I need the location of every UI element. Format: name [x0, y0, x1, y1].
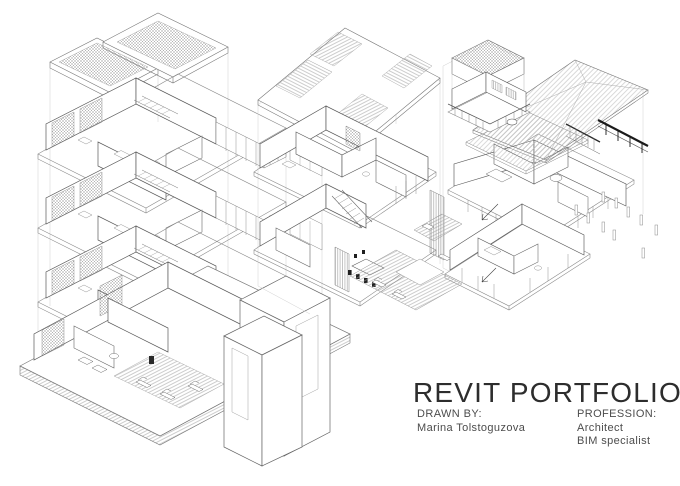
- profession-label: PROFESSION:: [577, 408, 657, 422]
- drawn-by-name: Marina Tolstoguzova: [417, 422, 577, 436]
- lower-floor: [445, 204, 590, 310]
- profession-line: BIM specialist: [577, 435, 657, 449]
- lower-floor: [254, 184, 462, 310]
- exploded-axonometric-hip-roof-house: [438, 16, 680, 316]
- entry-tower: [224, 316, 302, 466]
- credits-block: DRAWN BY: Marina Tolstoguzova PROFESSION…: [417, 408, 657, 449]
- portfolio-sheet: REVIT PORTFOLIO DRAWN BY: Marina Tolstog…: [0, 0, 680, 486]
- page-title: REVIT PORTFOLIO: [413, 377, 680, 409]
- exploded-axonometric-flat-roof-house: [246, 14, 462, 334]
- profession-line: Architect: [577, 422, 657, 436]
- profession-column: PROFESSION: Architect BIM specialist: [577, 408, 657, 449]
- drawn-by-column: DRAWN BY: Marina Tolstoguzova: [417, 408, 577, 449]
- drawn-by-label: DRAWN BY:: [417, 408, 577, 422]
